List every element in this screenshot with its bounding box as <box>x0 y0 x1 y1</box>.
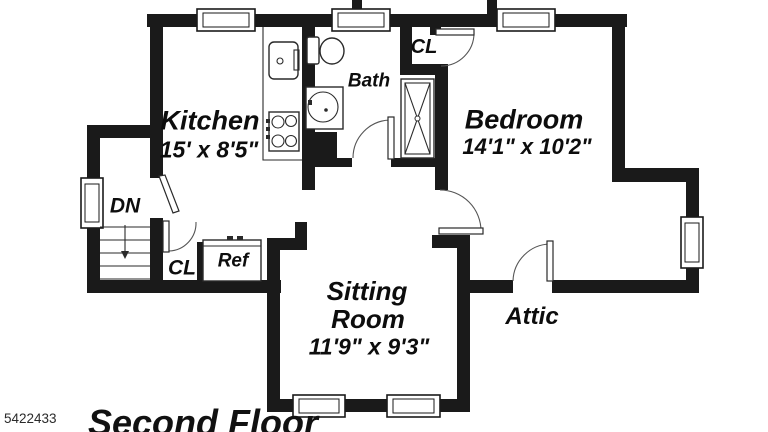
window <box>681 217 703 268</box>
bedroom-dims-label: 14'1" x 10'2" <box>462 136 591 158</box>
photo-id: 5422433 <box>4 411 57 426</box>
bath-label: Bath <box>348 72 390 91</box>
bath-sink <box>306 87 343 129</box>
window <box>332 9 390 31</box>
floorplan: Kitchen 15' x 8'5" Bath CL Bedroom 14'1"… <box>0 0 768 432</box>
wall <box>302 158 352 167</box>
page-title: Second Floor <box>88 403 318 432</box>
stairs-down-label: DN <box>110 196 140 217</box>
stairs <box>100 225 150 279</box>
closet-hall-label: CL <box>168 258 196 279</box>
window <box>197 9 255 31</box>
attic-door <box>513 241 553 281</box>
stove <box>266 112 299 151</box>
attic-label: Attic <box>505 305 558 329</box>
refrigerator-label: Ref <box>218 252 249 271</box>
wall <box>487 0 497 15</box>
bath-door <box>353 117 394 159</box>
wall <box>612 168 699 182</box>
window <box>497 9 555 31</box>
sitting-dims-label: 11'9" x 9'3" <box>309 336 430 359</box>
sitting-room-label: Sitting <box>327 278 408 304</box>
top-closet-door <box>436 29 474 66</box>
kitchen-sink <box>269 42 299 79</box>
wall <box>552 280 699 293</box>
kitchen-label: Kitchen <box>160 108 259 135</box>
stair-door <box>159 175 179 213</box>
wall <box>457 235 470 412</box>
wall <box>295 222 307 250</box>
sitting-room-label2: Room <box>331 306 405 332</box>
wall <box>432 235 470 248</box>
window <box>81 178 103 228</box>
toilet <box>307 37 344 64</box>
closet-top-label: CL <box>411 37 438 57</box>
bedroom-door <box>439 190 483 234</box>
chimney-box <box>305 132 337 158</box>
hall-closet-door <box>163 221 196 252</box>
bedroom-label: Bedroom <box>465 107 584 134</box>
wall <box>267 238 280 412</box>
shower-shaft <box>401 79 434 158</box>
down-arrow-icon <box>121 251 129 259</box>
wall <box>435 72 448 190</box>
wall <box>612 14 625 182</box>
kitchen-dims-label: 15' x 8'5" <box>160 139 259 162</box>
window <box>387 395 440 417</box>
wall <box>87 280 281 293</box>
wall <box>150 218 163 293</box>
